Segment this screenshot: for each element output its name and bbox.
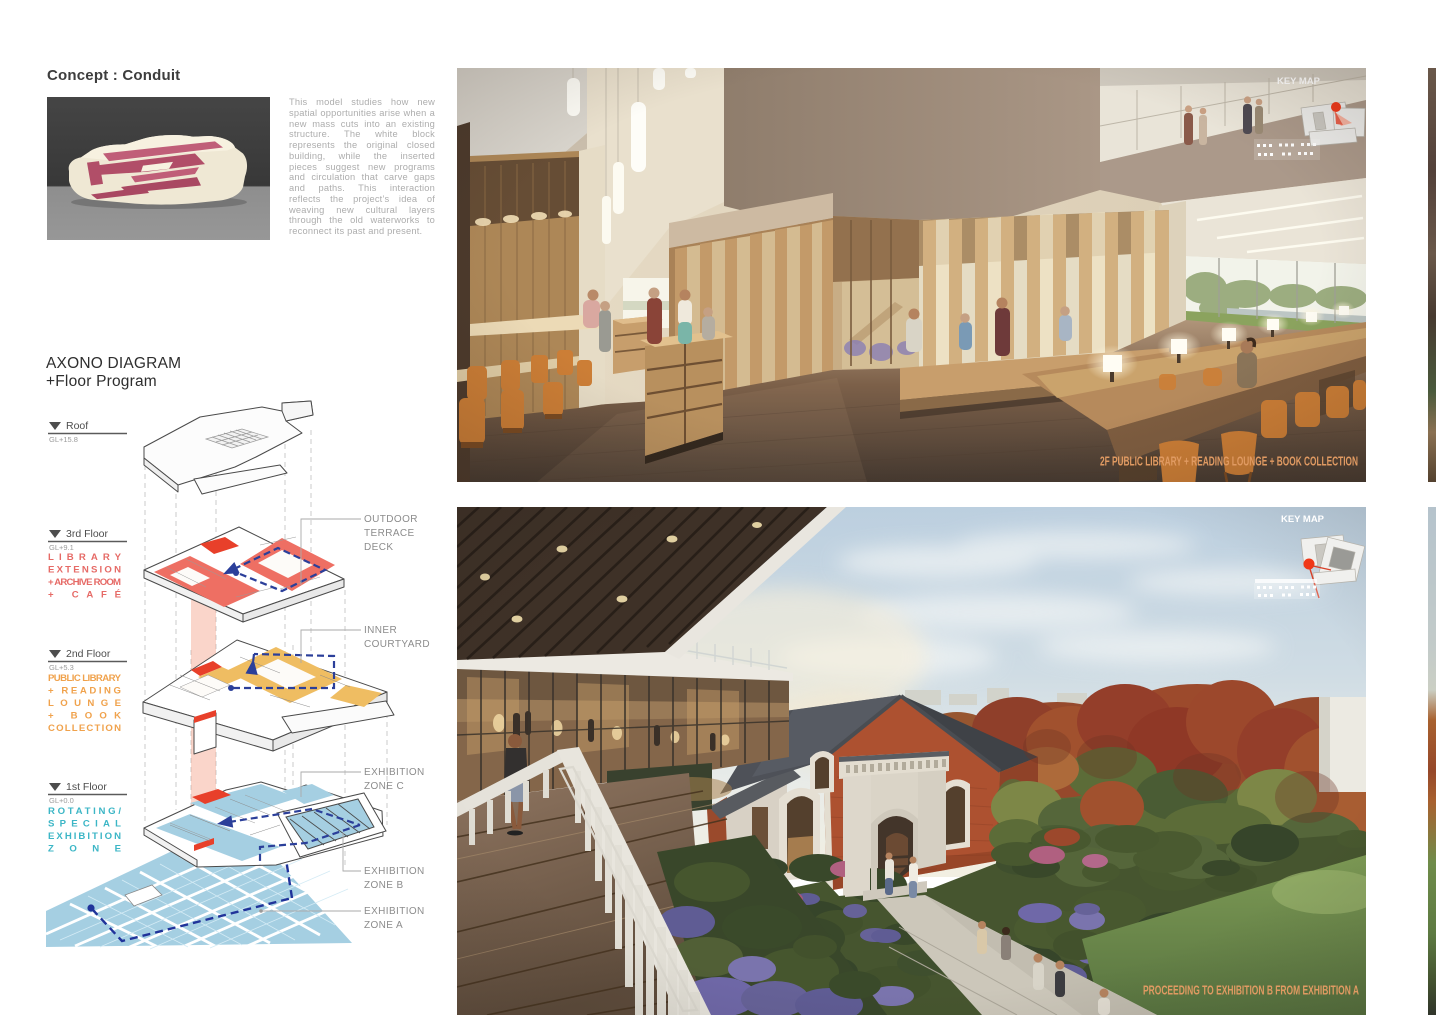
- svg-text:PROCEEDING TO EXHIBITION B FRO: PROCEEDING TO EXHIBITION B FROM EXHIBITI…: [1143, 984, 1359, 998]
- svg-text:+ BOOK: + BOOK: [48, 711, 121, 722]
- svg-text:ZONE B: ZONE B: [364, 880, 404, 891]
- svg-text:ROTATING/: ROTATING/: [48, 806, 121, 817]
- svg-text:1st Floor: 1st Floor: [66, 781, 107, 793]
- svg-text:LOUNGE: LOUNGE: [48, 698, 122, 709]
- svg-text:KEY MAP: KEY MAP: [1281, 514, 1325, 525]
- svg-text:+ READING: + READING: [48, 686, 121, 697]
- svg-text:COURTYARD: COURTYARD: [364, 639, 430, 650]
- svg-text:2F PUBLIC LIBRARY + READING LO: 2F PUBLIC LIBRARY + READING LOUNGE + BOO…: [1100, 455, 1358, 469]
- svg-text:EXHIBITION: EXHIBITION: [364, 767, 425, 778]
- svg-text:3rd Floor: 3rd Floor: [66, 528, 109, 540]
- svg-text:2nd Floor: 2nd Floor: [66, 648, 111, 660]
- svg-text:DECK: DECK: [364, 542, 393, 553]
- svg-text:GL+5.3: GL+5.3: [49, 663, 74, 672]
- svg-text:ZONE: ZONE: [48, 844, 122, 855]
- svg-text:Roof: Roof: [66, 420, 88, 432]
- svg-text:LIBRARY: LIBRARY: [48, 552, 122, 563]
- svg-text:GL+15.8: GL+15.8: [49, 435, 78, 444]
- svg-text:PUBLIC LIBRARY: PUBLIC LIBRARY: [48, 673, 122, 684]
- svg-text:OUTDOOR: OUTDOOR: [364, 514, 418, 525]
- svg-text:COLLECTION: COLLECTION: [48, 723, 121, 734]
- svg-text:EXHIBITION: EXHIBITION: [48, 831, 121, 842]
- svg-text:GL+0.0: GL+0.0: [49, 796, 74, 805]
- svg-text:+ CAFÉ: + CAFÉ: [48, 589, 122, 601]
- svg-text:ZONE A: ZONE A: [364, 920, 403, 931]
- svg-text:EXHIBITION: EXHIBITION: [364, 866, 425, 877]
- svg-text:EXHIBITION: EXHIBITION: [364, 906, 425, 917]
- svg-text:+ ARCHIVE ROOM: + ARCHIVE ROOM: [48, 577, 121, 588]
- svg-text:TERRACE: TERRACE: [364, 528, 415, 539]
- svg-text:ZONE C: ZONE C: [364, 781, 404, 792]
- svg-text:SPECIAL: SPECIAL: [48, 819, 121, 830]
- svg-text:EXTENSION: EXTENSION: [48, 565, 121, 576]
- svg-text:INNER: INNER: [364, 625, 397, 636]
- svg-text:GL+9.1: GL+9.1: [49, 543, 74, 552]
